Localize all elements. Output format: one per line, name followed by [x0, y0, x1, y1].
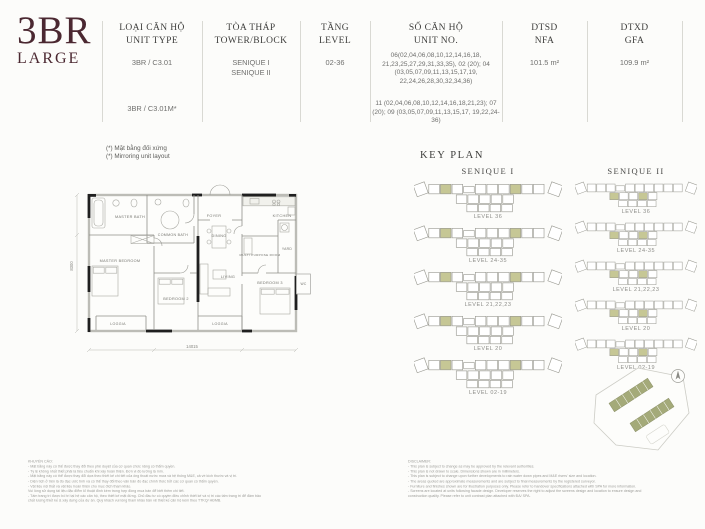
key-plan-tower-senique-1: SENIQUE I LEVEL 36LEVEL 24-35LEVEL 21,22…	[408, 166, 568, 401]
key-plan-level-label: LEVEL 36	[408, 214, 568, 220]
key-plan-level: LEVEL 21,22,23	[408, 269, 568, 308]
dimension-width-label: 14015	[186, 344, 198, 349]
key-plan-level: LEVEL 02-19	[408, 357, 568, 396]
key-plan-tower-senique-2: SENIQUE II LEVEL 36LEVEL 24-35LEVEL 21,2…	[572, 166, 700, 376]
floor-plan: 14015 8300 MASTER BATH COMMON BATH FOYER…	[46, 178, 334, 372]
column-level: TẦNG LEVEL 02-36	[300, 22, 370, 148]
key-plan-building-diagram	[575, 259, 697, 286]
floor-plan-drawing: 14015 8300 MASTER BATH COMMON BATH FOYER…	[46, 178, 334, 372]
column-label-en: GFA	[587, 35, 682, 48]
level-value: 02-36	[302, 58, 368, 68]
site-plan-drawing	[586, 363, 698, 455]
tower-value-2: SENIQUE II	[204, 68, 298, 78]
key-plan-level-label: LEVEL 20	[408, 346, 568, 352]
column-unit-no: SỐ CĂN HỘ UNIT NO. 06(02,04,06,08,10,12,…	[370, 22, 502, 148]
room-label-loggia-1: LOGGIA	[110, 322, 126, 326]
mirroring-notes: (*) Mặt bằng đối xứng (*) Mirroring unit…	[106, 145, 170, 161]
footer-heading-en: DISCLAIMER:	[408, 459, 700, 464]
key-plan-building-diagram	[414, 181, 562, 213]
key-plan-building-diagram	[414, 225, 562, 257]
fineprint-line: chất lượng thiết kế & xây dựng của dự án…	[28, 498, 375, 503]
fineprint-line: construction quality. Please refer to un…	[408, 494, 700, 499]
key-plan-level-label: LEVEL 24-35	[572, 248, 700, 254]
column-label-en: UNIT NO.	[370, 35, 502, 48]
column-divider	[682, 21, 683, 122]
column-label-vi: SỐ CĂN HỘ	[370, 22, 502, 35]
unit-type-value-1: 3BR / C3.01	[104, 58, 200, 68]
key-plan-level-label: LEVEL 24-35	[408, 258, 568, 264]
footer-heading-vi: KHUYẾN CÁO:	[28, 459, 375, 464]
key-plan-level-label: LEVEL 20	[572, 326, 700, 332]
room-label-bedroom-2: BEDROOM 2	[163, 297, 189, 301]
footer-disclaimer-en: DISCLAIMER: - This plan is subject to ch…	[408, 459, 700, 509]
room-label-master-bedroom: MASTER BEDROOM	[100, 259, 141, 263]
key-plan-level-label: LEVEL 36	[572, 209, 700, 215]
key-plan-level: LEVEL 20	[572, 298, 700, 332]
key-plan-building-diagram	[414, 313, 562, 345]
gfa-value: 109.9 m²	[589, 58, 680, 68]
key-plan-level: LEVEL 24-35	[408, 225, 568, 264]
column-tower-block: TÒA THÁP TOWER/BLOCK SENIQUE I SENIQUE I…	[202, 22, 300, 148]
key-plan-building-diagram	[575, 298, 697, 325]
key-plan-building-diagram	[414, 269, 562, 301]
column-label-en: NFA	[502, 35, 587, 48]
footer-disclaimer-vi: KHUYẾN CÁO: - Mặt bằng này có thể được t…	[28, 459, 376, 509]
unit-no-group-1: 06(02,04,06,08,10,12,14,16,18, 21,23,25,…	[372, 52, 500, 86]
column-label-vi: TẦNG	[300, 22, 370, 35]
key-plan-building-diagram	[575, 181, 697, 208]
note-vi: (*) Mặt bằng đối xứng	[106, 145, 170, 153]
footer-lines-vi: - Mặt bằng này có thể được thay đổi theo…	[28, 464, 375, 503]
key-plan-level: LEVEL 36	[408, 181, 568, 220]
column-gfa: DTXD GFA 109.9 m²	[587, 22, 682, 148]
tower-name-senique-1: SENIQUE I	[408, 166, 568, 176]
note-en: (*) Mirroring unit layout	[106, 153, 170, 161]
column-nfa: DTSD NFA 101.5 m²	[502, 22, 587, 148]
room-label-foyer: FOYER	[207, 214, 222, 218]
footer-lines-en: - This plan is subject to change as may …	[408, 464, 700, 498]
column-label-vi: TÒA THÁP	[202, 22, 300, 35]
column-label-en: TOWER/BLOCK	[202, 35, 300, 48]
room-label-multi-purpose: MULTI PURPOSE ROOM	[240, 253, 281, 257]
nfa-value: 101.5 m²	[504, 58, 585, 68]
key-plan-building-diagram	[575, 337, 697, 364]
room-label-common-bath: COMMON BATH	[158, 233, 188, 237]
key-plan-level: LEVEL 24-35	[572, 220, 700, 254]
column-label-en: UNIT TYPE	[102, 35, 202, 48]
brochure-page: 3BR LARGE LOẠI CĂN HỘ UNIT TYPE 3BR / C3…	[0, 0, 705, 529]
unit-type-value-2: 3BR / C3.01M*	[104, 104, 200, 114]
column-label-en: LEVEL	[300, 35, 370, 48]
key-plan-level: LEVEL 36	[572, 181, 700, 215]
unit-no-group-2: 11 (02,04,06,08,10,12,14,16,18,21,23); 0…	[372, 100, 500, 126]
key-plan-level-label: LEVEL 02-19	[408, 390, 568, 396]
room-label-wc: WC	[300, 282, 306, 286]
column-label-vi: DTSD	[502, 22, 587, 35]
title-large: LARGE	[17, 50, 107, 68]
room-label-kitchen: KITCHEN	[273, 214, 292, 218]
room-label-bedroom-3: BEDROOM 3	[257, 281, 283, 285]
north-compass-icon	[672, 370, 685, 383]
key-plan-heading: KEY PLAN	[420, 150, 484, 161]
title-3br: 3BR	[17, 12, 107, 50]
dimension-height-label: 8300	[69, 261, 74, 271]
column-unit-type: LOẠI CĂN HỘ UNIT TYPE 3BR / C3.01 3BR / …	[102, 22, 202, 148]
key-plan-level: LEVEL 20	[408, 313, 568, 352]
column-label-vi: DTXD	[587, 22, 682, 35]
tower-level-diagrams: LEVEL 36LEVEL 24-35LEVEL 21,22,23LEVEL 2…	[572, 181, 700, 371]
tower-level-diagrams: LEVEL 36LEVEL 24-35LEVEL 21,22,23LEVEL 2…	[408, 181, 568, 396]
key-plan-building-diagram	[575, 220, 697, 247]
room-label-living: LIVING	[221, 275, 235, 279]
tower-value-1: SENIQUE I	[204, 58, 298, 68]
site-plan	[586, 363, 698, 455]
key-plan-level-label: LEVEL 21,22,23	[572, 287, 700, 293]
tower-name-senique-2: SENIQUE II	[572, 166, 700, 176]
unit-type-title: 3BR LARGE	[17, 12, 107, 68]
key-plan-level-label: LEVEL 21,22,23	[408, 302, 568, 308]
key-plan-building-diagram	[414, 357, 562, 389]
room-label-yard: YARD	[282, 247, 293, 251]
room-label-master-bath: MASTER BATH	[115, 215, 145, 219]
room-label-dining: DINING	[211, 234, 226, 238]
room-label-loggia-2: LOGGIA	[212, 322, 228, 326]
column-label-vi: LOẠI CĂN HỘ	[102, 22, 202, 35]
key-plan-level: LEVEL 21,22,23	[572, 259, 700, 293]
